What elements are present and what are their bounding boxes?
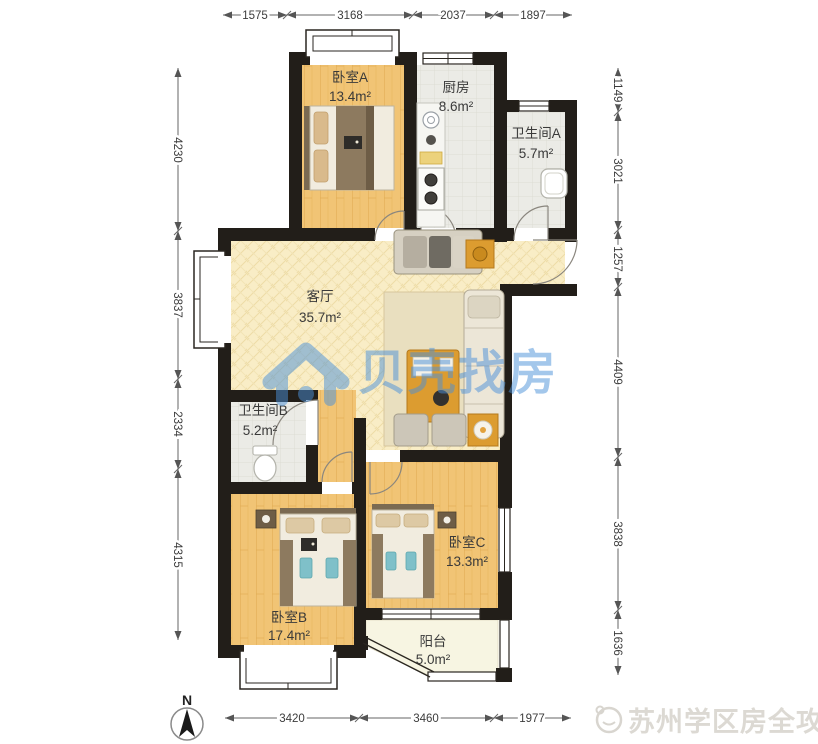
dim-top-4: 1897 — [520, 10, 546, 22]
dim-right-6: 1636 — [611, 630, 623, 656]
footer-watermark: 苏州学区房全攻略 — [597, 706, 818, 737]
room-area-balcony: 5.0m² — [416, 652, 451, 667]
dim-right-2: 3021 — [611, 158, 623, 184]
room-area-bedroom-b: 17.4m² — [268, 628, 311, 643]
living-room-sofa-set — [384, 230, 504, 446]
bedroom-a-bay-window — [306, 30, 399, 65]
room-area-bedroom-a: 13.4m² — [329, 89, 372, 104]
dim-right-1: 1149 — [611, 78, 623, 103]
bedroom-a-bed — [304, 106, 394, 190]
room-area-bathroom-a: 5.7m² — [519, 146, 554, 161]
dim-left-3: 2334 — [171, 411, 183, 437]
dim-right-3: 1257 — [611, 246, 623, 272]
dim-bottom-3: 1977 — [519, 713, 545, 725]
room-label-bedroom-c: 卧室C — [449, 534, 486, 550]
hallway-floor — [318, 390, 356, 482]
bathroom-a-window — [519, 101, 549, 111]
room-label-bedroom-a: 卧室A — [332, 69, 368, 85]
dim-right-4: 4409 — [611, 359, 623, 385]
bedroom-b-bay-window — [240, 645, 337, 689]
room-area-kitchen: 8.6m² — [439, 99, 474, 114]
dim-right-5: 3838 — [611, 521, 623, 547]
dim-bottom-1: 3420 — [279, 713, 305, 725]
room-label-bathroom-a: 卫生间A — [511, 126, 561, 141]
room-area-bedroom-c: 13.3m² — [446, 554, 489, 569]
room-area-bathroom-b: 5.2m² — [243, 423, 278, 438]
room-label-bedroom-b: 卧室B — [271, 609, 307, 625]
ottoman — [432, 414, 466, 446]
room-area-living: 35.7m² — [299, 310, 342, 325]
dim-left-4: 4315 — [171, 542, 183, 568]
floor-plan-canvas: 卧室A 13.4m² 厨房 8.6m² 卫生间A 5.7m² 客厅 35.7m²… — [0, 0, 818, 744]
compass: N — [171, 692, 203, 740]
dim-top-1: 1575 — [242, 10, 268, 22]
watermark-text: 贝壳找房 — [358, 347, 558, 400]
room-label-balcony: 阳台 — [420, 634, 447, 649]
bedroom-c-window — [499, 508, 510, 572]
floor-plan-image: 卧室A 13.4m² 厨房 8.6m² 卫生间A 5.7m² 客厅 35.7m²… — [0, 0, 818, 744]
compass-north-label: N — [182, 692, 192, 708]
room-label-living: 客厅 — [307, 288, 334, 304]
toilet-icon — [253, 446, 277, 481]
dim-left-1: 4230 — [171, 137, 183, 163]
sink-icon — [423, 112, 439, 128]
room-label-kitchen: 厨房 — [443, 80, 470, 95]
dim-left-2: 3837 — [171, 292, 183, 318]
dim-bottom-2: 3460 — [413, 713, 439, 725]
footer-logo-icon — [597, 707, 622, 733]
living-room-bay-window — [194, 251, 231, 348]
kitchen-counter — [417, 103, 445, 227]
dim-top-3: 2037 — [440, 10, 466, 22]
dim-top-2: 3168 — [337, 10, 363, 22]
footer-watermark-text: 苏州学区房全攻略 — [628, 706, 818, 737]
kitchen-window — [423, 53, 473, 64]
ottoman — [394, 414, 428, 446]
